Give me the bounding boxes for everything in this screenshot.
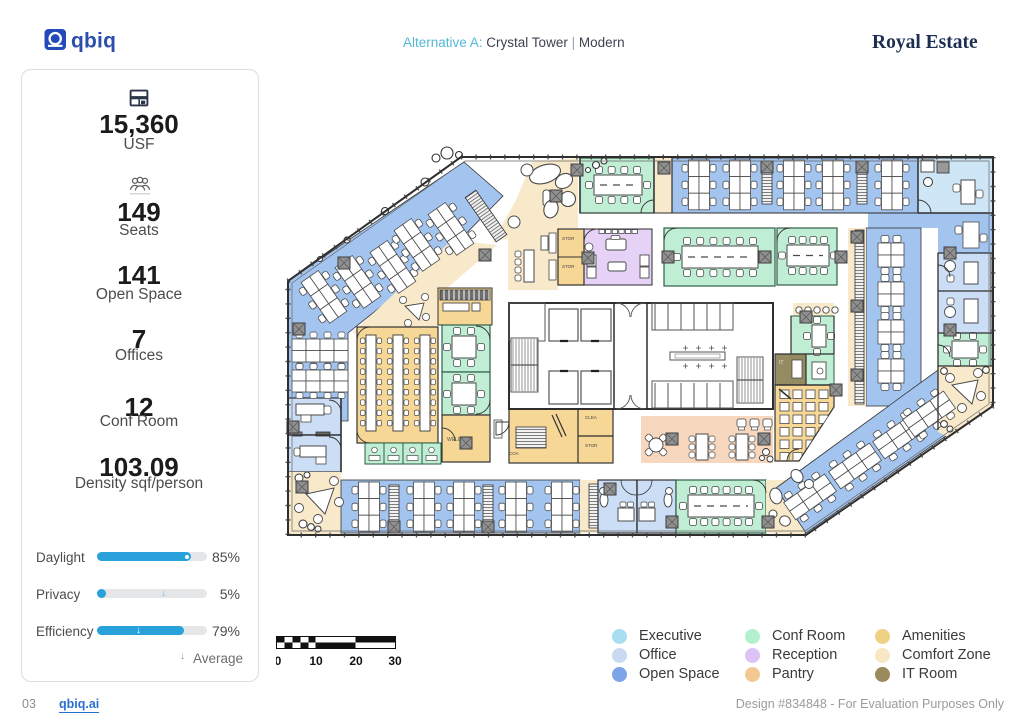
svg-text:10: 10 [309, 654, 323, 668]
svg-text:20: 20 [349, 654, 363, 668]
svg-text:STOR: STOR [585, 443, 598, 448]
svg-text:0: 0 [276, 654, 282, 668]
svg-text:WELL: WELL [447, 437, 461, 443]
svg-text:STOR: STOR [562, 236, 575, 241]
svg-text:IT: IT [779, 360, 783, 366]
svg-text:STOR: STOR [562, 264, 575, 269]
svg-text:30: 30 [388, 654, 402, 668]
svg-text:CLEA: CLEA [585, 415, 597, 420]
svg-text:COA: COA [509, 451, 519, 456]
svg-text:qbiq: qbiq [71, 30, 116, 53]
